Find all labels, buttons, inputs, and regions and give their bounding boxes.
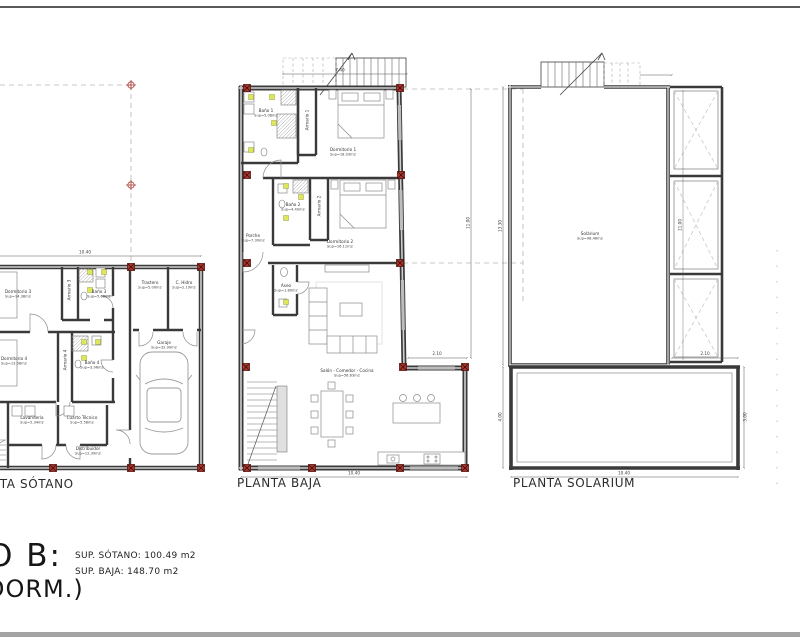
- dim-label: 11.00: [678, 219, 683, 231]
- titleblock-model-name: O B:: [0, 538, 62, 574]
- baja-dim-step: 2.10: [408, 351, 467, 358]
- plan-baja: 7.40: [239, 53, 523, 477]
- bed-dorm2: [331, 180, 395, 228]
- dim-label: 11.00: [466, 217, 471, 229]
- room-area: Sup=5.34m2: [20, 421, 44, 425]
- baja-stairs: [247, 382, 287, 464]
- titleblock-sup-sotano: SUP. SÓTANO: 100.49 m2: [75, 551, 196, 561]
- room-area: Sup=56.63m2: [334, 374, 360, 378]
- floor-plans-svg: 10.40: [0, 0, 800, 640]
- dim-label: 3.00: [743, 412, 748, 422]
- room-label: Armario 4: [63, 349, 68, 370]
- dim-label: 7.40: [335, 68, 345, 73]
- room-area: Sup=16.11m2: [327, 245, 353, 249]
- room-area: Sup=7.30m2: [241, 239, 265, 243]
- solarium-dim-left-upper: 13.30: [498, 87, 504, 365]
- room-label: Armario 1: [305, 109, 310, 130]
- solarium-room-labels: Solárium Sup=98.46m2: [577, 231, 603, 241]
- baja-dashed-overhang: [403, 89, 523, 302]
- room-label: Baño 4: [85, 360, 100, 365]
- plan-sotano: 10.40: [0, 80, 205, 472]
- solarium-dim-panel: 11.00: [678, 90, 684, 360]
- room-label: C. Hidro: [176, 280, 193, 285]
- room-area: Sup=12.39m2: [75, 452, 101, 456]
- room-area: Sup=5.08m2: [254, 114, 278, 118]
- dim-label: 13.30: [498, 220, 503, 232]
- dim-label: 4.00: [498, 412, 503, 422]
- room-label: Cuarto Técnico: [67, 415, 98, 420]
- room-area: Sup=5.08m2: [87, 295, 111, 299]
- room-label: Garaje: [157, 340, 171, 345]
- solarium-dim-right-lower: 3.00: [743, 367, 748, 468]
- car-top-view: [136, 352, 192, 454]
- dim-label: 2.10: [432, 351, 442, 356]
- dining-table-set: [311, 382, 353, 447]
- plan-solarium: 13.30 4.00 11.00 2.10 3.00 10.40: [498, 53, 748, 477]
- room-label: Armario 3: [67, 279, 72, 300]
- room-label: Baño 3: [92, 289, 107, 294]
- solarium-terrace: [509, 367, 740, 470]
- room-area: Sup=5.58m2: [70, 421, 94, 425]
- room-area: Sup=32.99m2: [151, 346, 177, 350]
- room-area: Sup=4.40m2: [281, 208, 305, 212]
- dim-label: 10.40: [618, 471, 630, 476]
- kitchen-island: [393, 395, 440, 424]
- room-label: Porche: [246, 233, 261, 238]
- sotano-dashed-overhang: [0, 85, 131, 262]
- plan-title-sotano: PLANTA SÓTANO: [0, 477, 74, 491]
- sheet-bottom-bar: [0, 632, 800, 637]
- room-label: Dormitorio 3: [5, 289, 32, 294]
- column-axis-marker: [126, 80, 136, 90]
- room-label: Distribuidor: [76, 446, 101, 451]
- room-label: Salón - Comedor - Cocina: [320, 368, 374, 373]
- titleblock-model-subtitle: DORM.): [0, 575, 84, 603]
- room-area: Sup=3.96m2: [80, 366, 104, 370]
- living-room-furniture: [309, 265, 382, 353]
- column-axis-marker: [126, 180, 136, 190]
- room-area: Sup=18.03m2: [330, 153, 356, 157]
- solarium-dim-left-lower: 4.00: [498, 367, 504, 468]
- kitchen-counter: [378, 452, 465, 465]
- plan-title-baja: PLANTA BAJA: [237, 476, 321, 490]
- drawing-sheet: 10.40: [0, 0, 800, 640]
- room-label: Aseo: [281, 283, 292, 288]
- solarium-walls: [508, 85, 670, 367]
- dim-label: 2.10: [700, 351, 710, 356]
- room-label: Solárium: [581, 231, 600, 236]
- room-label: Armario 2: [317, 195, 322, 216]
- plan-title-solarium: PLANTA SOLARIUM: [513, 476, 635, 490]
- room-label: Baño 1: [259, 108, 274, 113]
- room-label: Trastero: [141, 280, 159, 285]
- baja-dim-right: 11.00: [466, 89, 472, 358]
- room-area: Sup=98.46m2: [577, 237, 603, 241]
- bed-dorm1: [329, 90, 393, 138]
- sotano-stairs: [0, 440, 6, 466]
- room-area: Sup=1.80m2: [274, 289, 298, 293]
- dim-label: 10.40: [79, 250, 91, 255]
- room-label: Lavandería: [20, 415, 44, 420]
- room-label: Dormitorio 2: [327, 239, 354, 244]
- room-area: Sup=5.00m2: [138, 286, 162, 290]
- dim-label: 10.40: [348, 471, 360, 476]
- sotano-dim-width: 10.40: [0, 250, 201, 257]
- room-area: Sup=14.38m2: [5, 295, 31, 299]
- room-label: Dormitorio 4: [1, 356, 28, 361]
- titleblock-sup-baja: SUP. BAJA: 148.70 m2: [75, 567, 179, 577]
- room-label: Baño 2: [286, 202, 301, 207]
- room-area: Sup=13.58m2: [1, 362, 27, 366]
- room-area: Sup=2.19m2: [172, 286, 196, 290]
- room-label: Dormitorio 1: [330, 147, 357, 152]
